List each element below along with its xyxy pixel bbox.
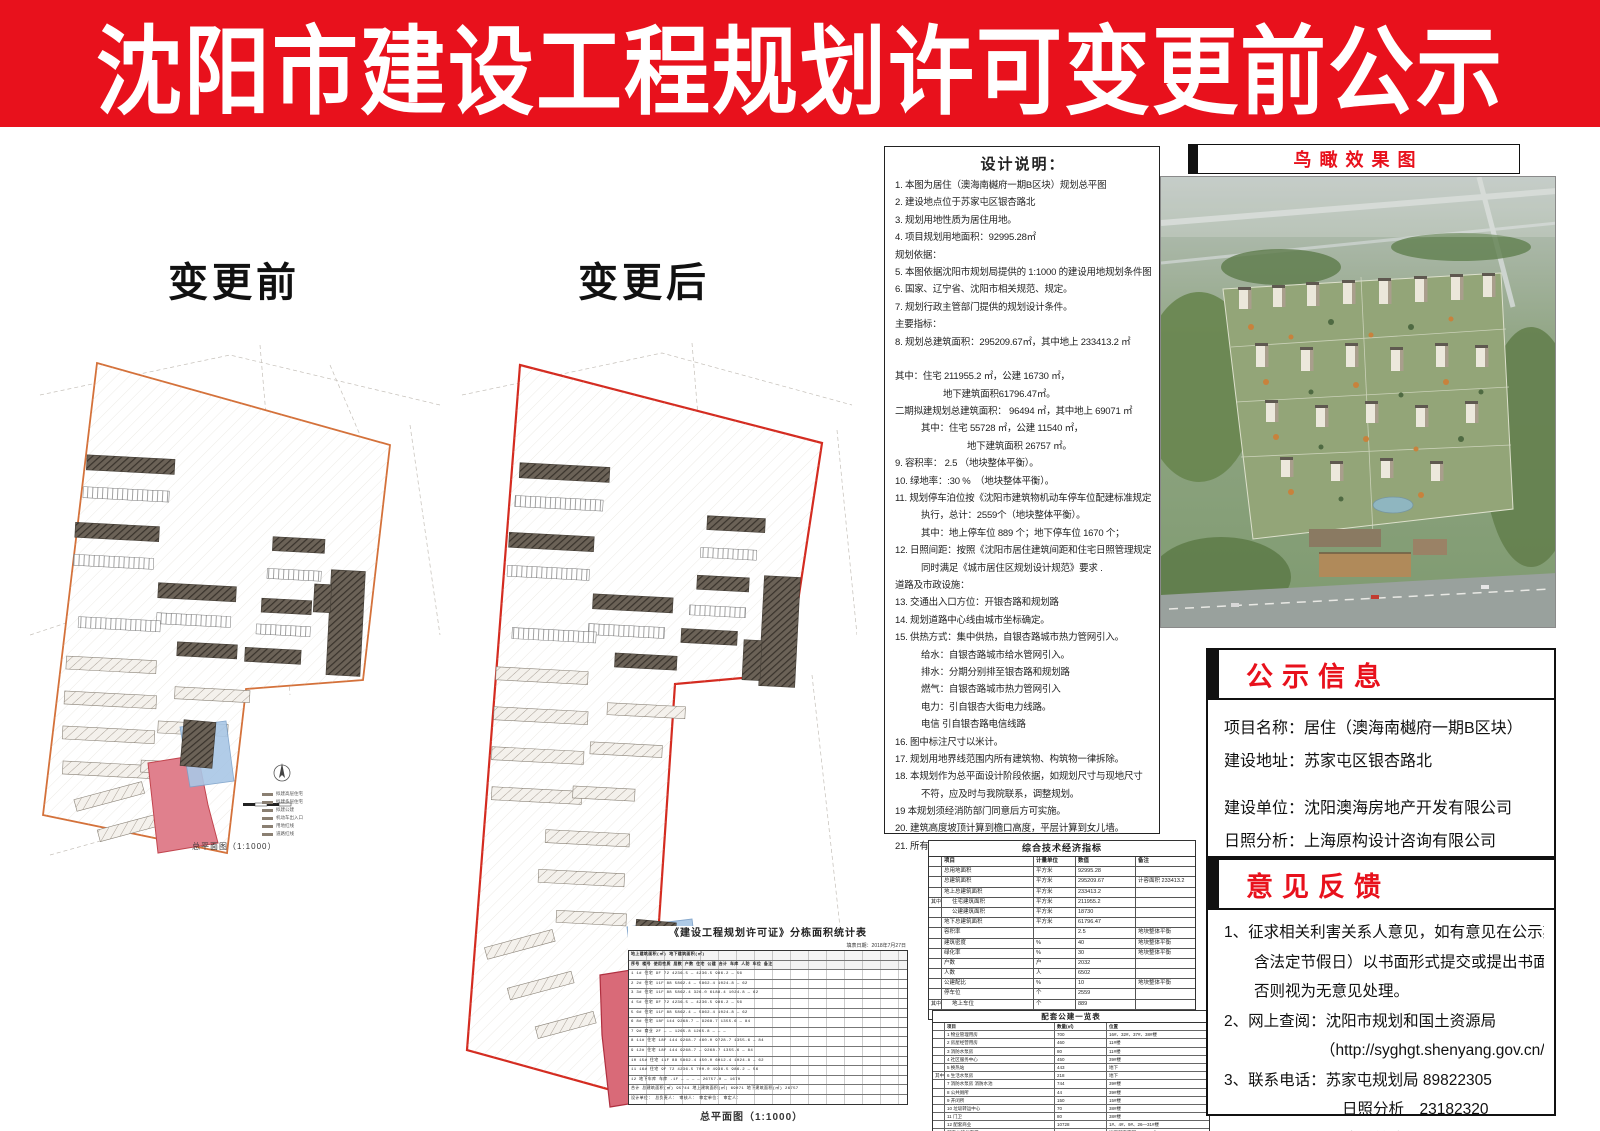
feedback-row: 3、联系电话：苏家屯规划局 89822305 (1224, 1066, 1544, 1096)
design-notes-title: 设计说明： (895, 153, 1151, 177)
table-row: 10 15# 住宅 11F 88 5862.4 150.0 6012.4 102… (629, 1057, 907, 1067)
header-bar-decoration (1206, 858, 1219, 910)
legend-item: 拟建公建 (262, 806, 357, 814)
legend-item: 拟建多层住宅 (262, 798, 357, 806)
econ-table-header: 项目 计量单位 数值 备注 (929, 857, 1195, 867)
legend-swatch (262, 793, 273, 796)
design-note-line: 12. 日照间距：按照《沈阳市居住建筑间距和住宅日照管理规定》执行 (895, 542, 1151, 559)
plan-legend-before: 拟建高层住宅 拟建多层住宅 拟建公建 机动车出入口 用地红线 (262, 790, 357, 838)
table-row: 人数 人 6502 (929, 969, 1195, 979)
table-row: 其中 住宅建筑面积 平方米 211955.2 (929, 898, 1195, 908)
legend-swatch (262, 809, 273, 812)
table-row: 公建建筑面积 平方米 18730 (929, 908, 1195, 918)
compass-icon (274, 763, 290, 781)
permit-table-date: 填表日期：2018年7月27日 (628, 942, 908, 950)
design-note-line: 规划依据： (895, 247, 1151, 264)
aerial-render-drawing (1161, 177, 1556, 628)
design-note-line: 排水：分期分别排至银杏路和规划路 (895, 664, 1151, 681)
legend-label: 机动车出入口 (276, 815, 303, 821)
feedback-row: 1、征求相关利害关系人意见，如有意见在公示期内（不 (1224, 918, 1544, 948)
support-table-header: 项目 数量(㎡) 位置 (933, 1023, 1209, 1031)
permit-table-title: 《建设工程规划许可证》分栋面积统计表 (628, 926, 908, 942)
table-row: 8 公共厕所 44 39#楼 (933, 1089, 1209, 1097)
design-note-line: 6. 国家、辽宁省、沈阳市相关规范、规定。 (895, 281, 1151, 298)
econ-header-unit: 计量单位 (1034, 857, 1076, 866)
design-notes-panel: 设计说明： 1. 本图为居住（澳海南樾府一期B区块）规划总平图 2. 建设地点位… (884, 146, 1160, 834)
table-row: 5 换热站 443 地下 (933, 1064, 1209, 1072)
table-row: 3 消防水泵房 80 11#楼 (933, 1048, 1209, 1056)
econ-header-item: 项目 (942, 857, 1034, 866)
table-row: 容积率 2.5 地块整体平衡 (929, 928, 1195, 938)
econ-header-note: 备注 (1136, 857, 1195, 866)
design-note-line: 燃气：自银杏路城市热力管网引入 (895, 681, 1151, 698)
table-row: 2 房屋经营用房 460 11#楼 (933, 1039, 1209, 1047)
design-note-line: 执行，总计：2559个（地块整体平衡）。 (895, 507, 1151, 524)
design-note-line: 2. 建设地点位于苏家屯区银杏路北 (895, 194, 1151, 211)
site-plan-before (30, 335, 450, 860)
legend-item: 机动车出入口 (262, 814, 357, 822)
header-bar-decoration (1206, 648, 1219, 700)
haze-overlay (1161, 177, 1556, 237)
table-row: 4 5# 住宅 9F 72 4236.5 — 4236.5 986.2 — 56 (629, 999, 907, 1009)
banner: 沈阳市建设工程规划许可变更前公示 (0, 0, 1600, 127)
econ-indicators-table: 综合技术经济指标 项目 计量单位 数值 备注 总用地面积 平方米 92995.2… (928, 840, 1196, 1020)
table-row: 其中 6 生活水泵房 218 地下 (933, 1072, 1209, 1080)
pond (1373, 497, 1413, 513)
design-note-line: 主要指标： (895, 316, 1151, 333)
design-note-line: 道路及市政设施： (895, 577, 1151, 594)
design-note-line: 15. 供热方式：集中供热，自银杏路城市热力管网引入。 (895, 629, 1151, 646)
notice-info-row (1224, 778, 1544, 792)
support-table-body: 1 物业管理用房 700 16#、32#、37#、38#楼 2 房屋经营用房 4… (933, 1031, 1209, 1131)
site-plan-before-drawing (30, 335, 450, 860)
notice-poster: 沈阳市建设工程规划许可变更前公示 变更前 变更后 (0, 0, 1600, 1131)
table-row: 地上总建筑面积 平方米 233413.2 (929, 888, 1195, 898)
econ-table-title: 综合技术经济指标 (929, 841, 1195, 857)
design-note-line: 18. 本规划作为总平面设计阶段依据，如规划尺寸与现地尺寸 (895, 768, 1151, 785)
design-note-line: 二期拟建规划总建筑面积： 96494 ㎡，其中地上 69071 ㎡ (895, 403, 1151, 420)
legend-label: 拟建多层住宅 (276, 799, 303, 805)
table-row: 设计单位： 总负责人： 审核人： 审定单位： 审定人： (629, 1095, 907, 1104)
feedback-row: 含法定节假日）以书面形式提交或提出书面听证申请， (1224, 948, 1544, 978)
table-row: 12 配套商业 10728 1#、4#、9#、26—31#楼 (933, 1121, 1209, 1129)
permit-area-table: 《建设工程规划许可证》分栋面积统计表 填表日期：2018年7月27日 地上建筑面… (628, 926, 908, 1105)
design-note-line: 地下建筑面积 26757 ㎡。 (895, 438, 1151, 455)
table-row: 2 2# 住宅 11F 88 5862.4 — 5862.4 1024.8 — … (629, 980, 907, 990)
plan-caption-before: 总平面图（1:1000） (192, 841, 276, 852)
design-note-line: 其中：住宅 55728 ㎡，公建 11540 ㎡， (895, 420, 1151, 437)
notice-info-panel: 公示信息 项目名称：居住（澳海南樾府一期B区块） 建设地址：苏家屯区银杏路北 建… (1206, 648, 1556, 858)
econ-header-val: 数值 (1076, 857, 1136, 866)
legend-swatch (262, 801, 273, 804)
design-note-line: 电力：引自银杏大街电力线路。 (895, 699, 1151, 716)
design-note-line: 20. 建筑高度坡顶计算到檐口高度，平层计算到女儿墙。 (895, 820, 1151, 837)
table-row: 总用地面积 平方米 92995.28 (929, 867, 1195, 877)
feedback-row: 2、网上查阅：沈阳市规划和国土资源局 (1224, 1007, 1544, 1037)
feedback-header: 意见反馈 (1208, 860, 1554, 910)
design-note-line: 给水：自银杏路城市给水管网引入。 (895, 647, 1151, 664)
notice-info-title: 公示信息 (1246, 655, 1390, 694)
design-note-line: 10. 绿地率：:30 % （地块整体平衡）。 (895, 473, 1151, 490)
design-note-line: 4. 项目规划用地面积：92995.28㎡ (895, 229, 1151, 246)
legend-swatch (262, 825, 273, 828)
highlight-building (180, 720, 216, 769)
table-row: 7 9# 商业 2F — — 1265.8 1265.8 — — — (629, 1028, 907, 1038)
header-bar-decoration (1189, 145, 1198, 173)
notice-info-row: 日照分析：上海原构设计咨询有限公司 (1224, 825, 1544, 858)
table-row: 7 消防水泵房 消防水池 744 39#楼 (933, 1080, 1209, 1088)
feedback-row: 日照分析 23182320 (1224, 1095, 1544, 1125)
feedback-body: 1、征求相关利害关系人意见，如有意见在公示期内（不 含法定节假日）以书面形式提交… (1208, 910, 1554, 1131)
design-note-line: 电信 引自银杏路电信线路 (895, 716, 1151, 733)
table-row: 11 门卫 80 38#楼 (933, 1113, 1209, 1121)
notice-info-header: 公示信息 (1208, 650, 1554, 700)
table-row: 11 16# 住宅 9F 72 4236.5 700.0 4936.5 986.… (629, 1066, 907, 1076)
econ-table-body: 总用地面积 平方米 92995.28 总建筑面积 平方米 295209.67 计… (929, 867, 1195, 1019)
notice-info-row: 建设地址：苏家屯区银杏路北 (1224, 745, 1544, 778)
design-note-line (895, 351, 1151, 368)
table-row: 合计 总建筑面积(㎡) 95744 地上建筑面积(㎡) 69071 地下建筑面积… (629, 1085, 907, 1095)
before-change-label: 变更前 (168, 250, 300, 308)
legend-label: 拟建公建 (276, 807, 294, 813)
design-notes-body: 1. 本图为居住（澳海南樾府一期B区块）规划总平图 2. 建设地点位于苏家屯区银… (895, 177, 1151, 855)
legend-item: 道路红线 (262, 830, 357, 838)
table-row: 绿化率 % 30 地块整体平衡 (929, 949, 1195, 959)
design-note-line: 5. 本图依据沈阳市规划局提供的 1:1000 的建设用地规划条件图绘制。 (895, 264, 1151, 281)
table-row: 建筑密度 % 40 地块整体平衡 (929, 939, 1195, 949)
page-title: 沈阳市建设工程规划许可变更前公示 (96, 0, 1504, 134)
design-note-line: 8. 规划总建筑面积：295209.67㎡，其中地上 233413.2 ㎡ (895, 334, 1151, 351)
table-row: 8 11# 住宅 18F 144 9268.7 460.0 9728.7 135… (629, 1037, 907, 1047)
table-row: 12 地下车库 车库 -1F — — — — 26757.0 — 1670 (629, 1076, 907, 1086)
design-note-line: 3. 规划用地性质为居住用地。 (895, 212, 1151, 229)
table-row: 地下总建筑面积 平方米 61796.47 (929, 918, 1195, 928)
design-note-line: 19 本规划须经消防部门同意后方可实施。 (895, 803, 1151, 820)
permit-table-grid: 地上建筑面积(㎡) 地下建筑面积(㎡) 序号 楼号 使用性质 层数 户数 住宅 … (628, 950, 908, 1105)
table-row: 9 12# 住宅 18F 144 9268.7 — 9268.7 1355.6 … (629, 1047, 907, 1057)
design-note-line: 11. 规划停车泊位按《沈阳市建筑物机动车停车位配建标准规定（试行）》 (895, 490, 1151, 507)
support-table-title: 配套公建一览表 (933, 1011, 1209, 1023)
legend-label: 用地红线 (276, 823, 294, 829)
table-row: 总建筑面积 平方米 295209.67 计容面积 233413.2 (929, 877, 1195, 887)
design-note-line: 同时满足《城市居住区规划设计规范》要求 . (895, 560, 1151, 577)
design-note-line: 9. 容积率： 2.5 （地块整体平衡）。 (895, 455, 1151, 472)
design-note-line: 16. 图中标注尺寸以米计。 (895, 734, 1151, 751)
legend-swatch (262, 817, 273, 820)
design-note-line: 其中：住宅 211955.2 ㎡，公建 16730 ㎡， (895, 368, 1151, 385)
legend-item: 用地红线 (262, 822, 357, 830)
design-note-line: 14. 规划道路中心线由城市坐标确定。 (895, 612, 1151, 629)
notice-info-row: 建设单位：沈阳澳海房地产开发有限公司 (1224, 792, 1544, 825)
design-note-line: 地下建筑面积61796.47㎡。 (895, 386, 1151, 403)
table-row: 地上建筑面积(㎡) 地下建筑面积(㎡) (629, 951, 907, 961)
design-note-line: 13. 交通出入口方位：开银杏路和规划路 (895, 594, 1151, 611)
feedback-title: 意见反馈 (1246, 865, 1390, 904)
legend-swatch (262, 833, 273, 836)
feedback-panel: 意见反馈 1、征求相关利害关系人意见，如有意见在公示期内（不 含法定节假日）以书… (1206, 858, 1556, 1116)
notice-info-row: 项目名称：居住（澳海南樾府一期B区块） (1224, 712, 1544, 745)
table-row: 9 开闭所 150 15#楼 (933, 1097, 1209, 1105)
table-row: 3 3# 住宅 11F 88 5862.4 326.0 6188.4 1024.… (629, 989, 907, 999)
aerial-view-header: 鸟瞰效果图 (1188, 144, 1520, 174)
legend-item: 拟建高层住宅 (262, 790, 357, 798)
feedback-row: 建设单位 89639999 (1224, 1125, 1544, 1131)
after-change-label: 变更后 (578, 250, 710, 308)
design-note-line: 不符，应及时与我院联系，调整规划。 (895, 786, 1151, 803)
table-row: 其中 地上车位 个 889 (929, 1000, 1195, 1010)
design-note-line: 其中：地上停车位 889 个；地下停车位 1670 个； (895, 525, 1151, 542)
aerial-view-title: 鸟瞰效果图 (1198, 146, 1519, 172)
table-row: 停车位 个 2559 (929, 989, 1195, 999)
design-note-line: 7. 规划行政主管部门提供的规划设计条件。 (895, 299, 1151, 316)
table-row: 6 8# 住宅 18F 144 9268.7 — 9268.7 1355.6 —… (629, 1018, 907, 1028)
table-row: 1 物业管理用房 700 16#、32#、37#、38#楼 (933, 1031, 1209, 1039)
table-row: 公建配比 % 10 地块整体平衡 (929, 979, 1195, 989)
legend-label: 拟建高层住宅 (276, 791, 303, 797)
table-row: 5 6# 住宅 11F 88 5862.4 — 5862.4 1024.8 — … (629, 1009, 907, 1019)
table-row: 1 1# 住宅 9F 72 4236.5 — 4236.5 986.2 — 56 (629, 970, 907, 980)
feedback-row: （http://syghgt.shenyang.gov.cn/） (1224, 1036, 1544, 1066)
design-note-line: 17. 规划用地界线范围内所有建筑物、构筑物一律拆除。 (895, 751, 1151, 768)
legend-label: 道路红线 (276, 831, 294, 837)
feedback-row: 否则视为无意见处理。 (1224, 977, 1544, 1007)
plan-caption-after: 总平面图（1:1000） (700, 1108, 803, 1123)
table-row: 4 社区服务中心 450 39#楼 (933, 1056, 1209, 1064)
table-row: 10 垃圾转运中心 70 38#楼 (933, 1105, 1209, 1113)
table-row: 序号 楼号 使用性质 层数 户数 住宅 公建 合计 车库 人防 车位 备注 (629, 961, 907, 971)
table-row: 户数 户 2032 (929, 959, 1195, 969)
aerial-render-image (1160, 176, 1556, 628)
support-buildings-table: 配套公建一览表 项目 数量(㎡) 位置 1 物业管理用房 700 16#、32#… (932, 1010, 1210, 1131)
design-note-line: 1. 本图为居住（澳海南樾府一期B区块）规划总平图 (895, 177, 1151, 194)
